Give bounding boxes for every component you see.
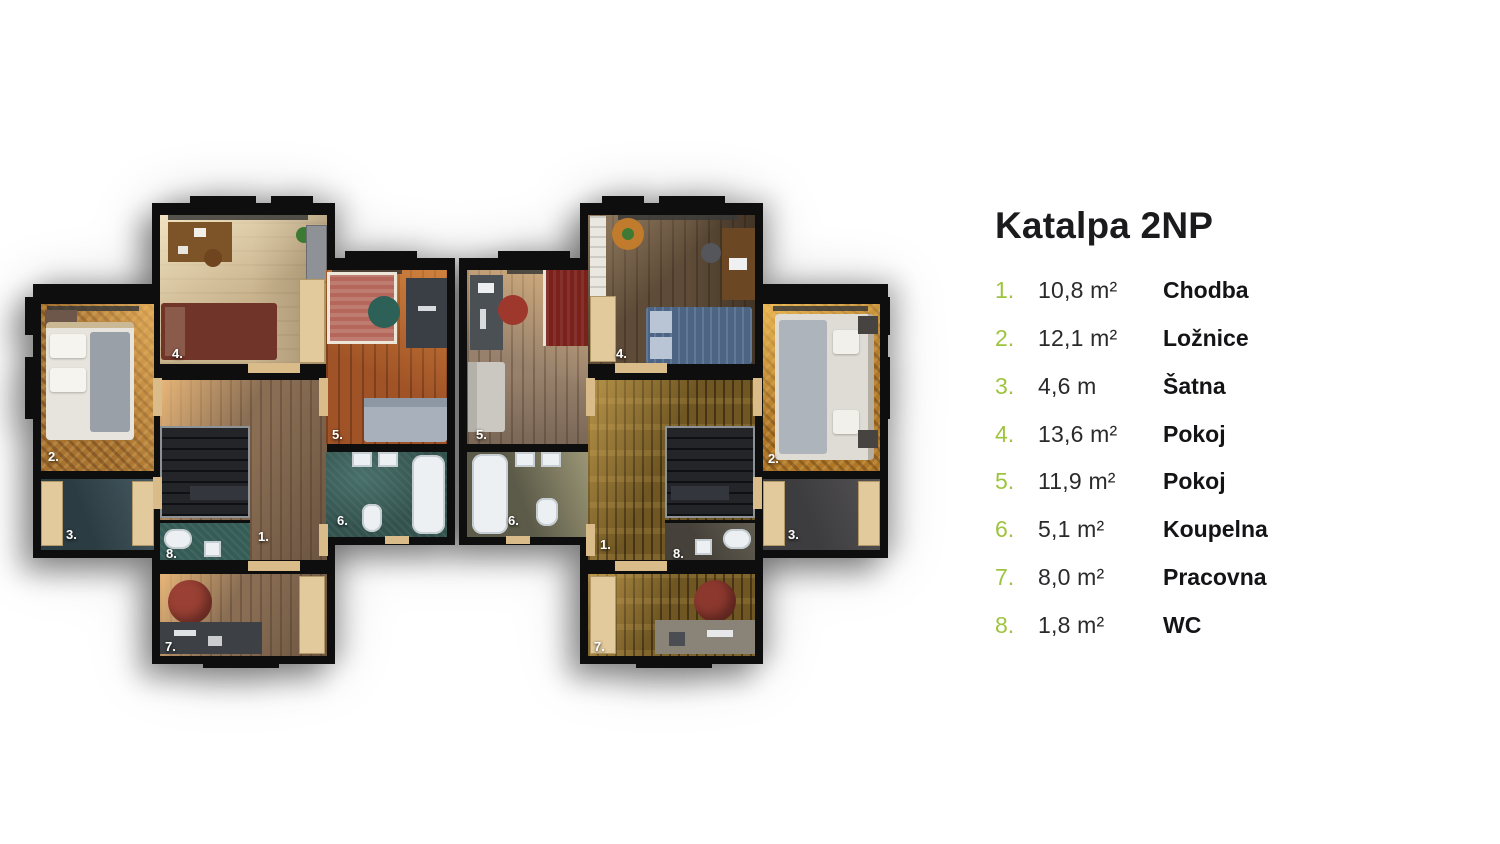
toilet: [362, 504, 382, 532]
wardrobe: [763, 481, 785, 546]
sofa: [364, 398, 447, 442]
nightstand: [858, 430, 878, 448]
door-threshold: [319, 378, 328, 416]
room-number-label: 4.: [172, 347, 183, 360]
bed: [646, 307, 752, 364]
paper: [208, 636, 222, 646]
legend-item-area: 5,1 m²: [1038, 516, 1163, 543]
legend-row: 2. 12,1 m² Ložnice: [995, 315, 1425, 363]
toilet: [723, 529, 751, 549]
room-pracovna-right: 7.: [588, 574, 755, 656]
legend-row: 6. 5,1 m² Koupelna: [995, 506, 1425, 554]
wardrobe: [132, 481, 154, 546]
keyboard: [418, 306, 436, 311]
bathtub: [412, 455, 445, 534]
stair-landing: [671, 486, 729, 500]
blanket: [779, 320, 827, 454]
paper: [178, 246, 188, 254]
legend-item-area: 4,6 m: [1038, 373, 1163, 400]
pillow: [50, 334, 86, 358]
room-pokoj4-right: 4.: [588, 215, 755, 364]
door-threshold: [506, 536, 530, 544]
pillow: [650, 337, 672, 359]
paper: [194, 228, 206, 237]
room-chodba-right: 8. 1.: [588, 380, 755, 560]
legend-item-number: 2.: [995, 325, 1038, 352]
door-threshold: [586, 524, 595, 556]
legend-row: 8. 1,8 m² WC: [995, 601, 1425, 649]
washbasin: [204, 541, 221, 557]
washbasin: [695, 539, 712, 555]
nightstand: [858, 316, 878, 334]
legend-item-name: Koupelna: [1163, 516, 1268, 543]
staircase: [665, 426, 755, 518]
room-chodba-left: 8. 1.: [160, 380, 327, 560]
sink: [378, 452, 398, 467]
sink: [352, 452, 372, 467]
legend-row: 4. 13,6 m² Pokoj: [995, 410, 1425, 458]
door-threshold: [319, 524, 328, 556]
room-number-label: 2.: [768, 452, 779, 465]
chair: [701, 243, 721, 263]
monitor: [478, 283, 494, 293]
keyboard: [707, 630, 733, 637]
chair: [204, 249, 222, 267]
legend-item-name: Chodba: [1163, 277, 1249, 304]
legend-item-area: 12,1 m²: [1038, 325, 1163, 352]
legend-row: 1. 10,8 m² Chodba: [995, 267, 1425, 315]
room-number-label: 8.: [166, 547, 177, 560]
armchair: [168, 580, 212, 624]
legend-item-number: 4.: [995, 421, 1038, 448]
legend-item-area: 10,8 m²: [1038, 277, 1163, 304]
legend-row: 3. 4,6 m Šatna: [995, 363, 1425, 411]
legend-item-name: Ložnice: [1163, 325, 1249, 352]
legend-item-number: 6.: [995, 516, 1038, 543]
room-number-label: 3.: [788, 528, 799, 541]
laptop: [729, 258, 747, 270]
toilet: [536, 498, 558, 526]
legend: 1. 10,8 m² Chodba 2. 12,1 m² Ložnice 3. …: [995, 267, 1425, 649]
door-threshold: [153, 378, 162, 416]
legend-item-name: Pracovna: [1163, 564, 1267, 591]
curtain-shelf: [590, 216, 606, 302]
room-loznice-left: 2.: [41, 304, 154, 471]
room-number-label: 5.: [476, 428, 487, 441]
room-number-label: 7.: [165, 640, 176, 653]
bed: [46, 322, 134, 440]
door-threshold: [153, 477, 162, 509]
room-pracovna-left: 7.: [160, 574, 327, 656]
door-threshold: [753, 477, 762, 509]
legend-item-name: WC: [1163, 612, 1201, 639]
room-number-label: 5.: [332, 428, 343, 441]
wardrobe: [299, 576, 325, 654]
desk: [655, 620, 755, 654]
round-rug: [612, 218, 644, 250]
keyboard: [174, 630, 196, 636]
window-sill: [773, 306, 868, 311]
sofa-back: [468, 362, 477, 432]
room-number-label: 1.: [258, 530, 269, 543]
legend-item-name: Pokoj: [1163, 468, 1226, 495]
legend-row: 7. 8,0 m² Pracovna: [995, 554, 1425, 602]
door-threshold: [615, 561, 667, 571]
legend-item-area: 8,0 m²: [1038, 564, 1163, 591]
office-chair: [498, 295, 528, 325]
legend-item-area: 1,8 m²: [1038, 612, 1163, 639]
blanket: [90, 332, 130, 432]
legend-item-area: 13,6 m²: [1038, 421, 1163, 448]
keyboard: [480, 309, 486, 329]
room-wc-right: 8.: [665, 520, 755, 560]
pillow: [50, 368, 86, 392]
room-wc-left: 8.: [160, 520, 250, 560]
wardrobe: [41, 481, 63, 546]
room-number-label: 8.: [673, 547, 684, 560]
room-number-label: 3.: [66, 528, 77, 541]
room-number-label: 6.: [337, 514, 348, 527]
room-number-label: 4.: [616, 347, 627, 360]
sink: [515, 452, 535, 467]
legend-item-number: 5.: [995, 468, 1038, 495]
window-sill: [168, 215, 308, 220]
bed: [543, 270, 588, 346]
room-number-label: 6.: [508, 514, 519, 527]
office-chair: [368, 296, 400, 328]
wardrobe: [590, 296, 616, 362]
sink: [541, 452, 561, 467]
room-koupelna-left: 6.: [326, 452, 447, 537]
door-threshold: [248, 561, 300, 571]
pillow: [833, 410, 859, 434]
pillow: [833, 330, 859, 354]
door-threshold: [385, 536, 409, 544]
door-threshold: [586, 378, 595, 416]
legend-item-number: 1.: [995, 277, 1038, 304]
legend-item-number: 7.: [995, 564, 1038, 591]
desk: [722, 228, 755, 300]
room-number-label: 2.: [48, 450, 59, 463]
sofa-back: [364, 398, 447, 407]
room-number-label: 1.: [600, 538, 611, 551]
legend-item-number: 3.: [995, 373, 1038, 400]
armchair: [694, 580, 736, 622]
desk: [406, 278, 447, 348]
legend-item-area: 11,9 m²: [1038, 468, 1163, 495]
monitor: [669, 632, 685, 646]
legend-item-name: Šatna: [1163, 373, 1226, 400]
staircase: [160, 426, 250, 518]
desk: [168, 222, 232, 262]
pillow: [650, 311, 672, 333]
room-number-label: 7.: [594, 640, 605, 653]
seat-cushions: [306, 225, 327, 283]
room-pokoj5-left: 5.: [326, 270, 447, 444]
room-pokoj4-left: 4.: [160, 215, 327, 364]
room-satna-right: 3.: [763, 479, 880, 550]
legend-item-name: Pokoj: [1163, 421, 1226, 448]
door-threshold: [753, 378, 762, 416]
legend-item-number: 8.: [995, 612, 1038, 639]
sofa: [468, 362, 505, 432]
legend-row: 5. 11,9 m² Pokoj: [995, 458, 1425, 506]
page: { "legend": { "title": "Katalpa 2NP", "a…: [0, 0, 1500, 844]
bathtub: [472, 454, 508, 534]
wardrobe: [858, 481, 880, 546]
room-loznice-right: 2.: [763, 304, 880, 471]
page-title: Katalpa 2NP: [995, 206, 1213, 247]
room-pokoj5-right: 5.: [467, 270, 588, 444]
wardrobe: [299, 279, 325, 363]
room-koupelna-right: 6.: [467, 452, 588, 537]
stair-landing: [190, 486, 248, 500]
door-threshold: [615, 363, 667, 373]
room-satna-left: 3.: [41, 479, 154, 550]
door-threshold: [248, 363, 300, 373]
plant: [622, 228, 634, 240]
